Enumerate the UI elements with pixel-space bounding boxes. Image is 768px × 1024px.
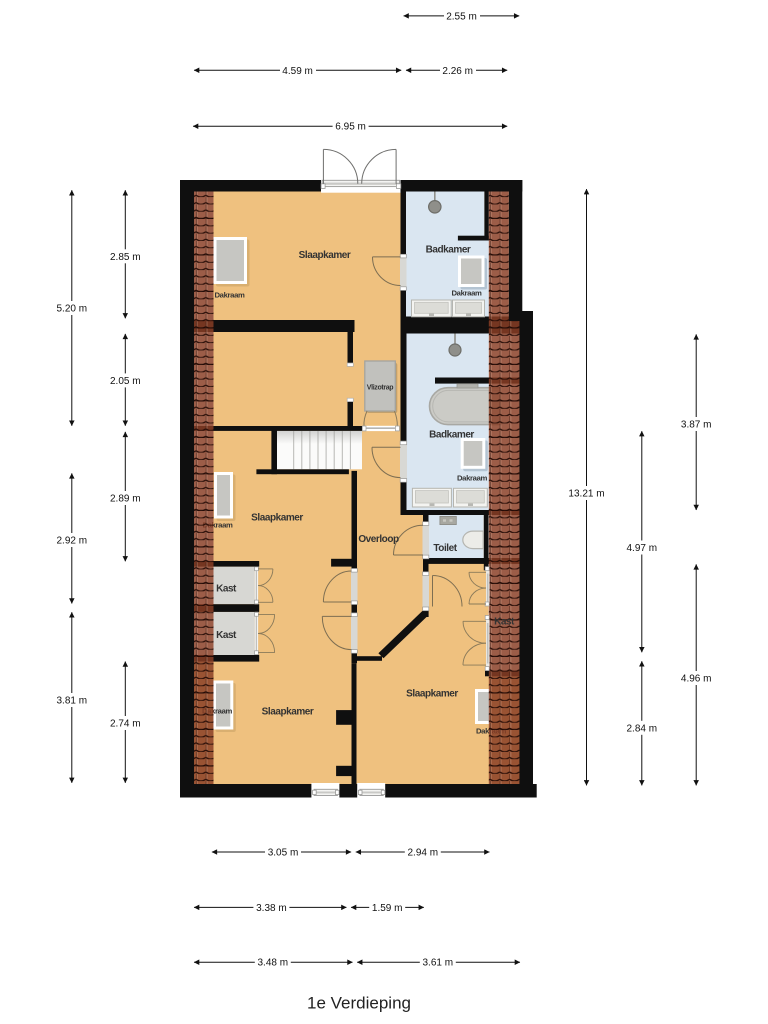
- svg-text:Badkamer: Badkamer: [426, 245, 471, 256]
- svg-text:3.61 m: 3.61 m: [423, 958, 454, 969]
- svg-text:2.84 m: 2.84 m: [627, 723, 658, 734]
- svg-text:Kast: Kast: [216, 630, 237, 641]
- svg-text:Toilet: Toilet: [433, 543, 457, 554]
- svg-text:3.87 m: 3.87 m: [681, 420, 712, 431]
- svg-text:2.92 m: 2.92 m: [57, 536, 88, 547]
- svg-text:1.59 m: 1.59 m: [372, 903, 403, 914]
- svg-text:Kast: Kast: [494, 617, 515, 628]
- svg-text:Slaapkamer: Slaapkamer: [406, 688, 458, 699]
- svg-text:3.81 m: 3.81 m: [57, 696, 88, 707]
- svg-text:2.94 m: 2.94 m: [408, 848, 439, 859]
- svg-text:Badkamer: Badkamer: [429, 429, 474, 440]
- svg-text:Slaapkamer: Slaapkamer: [262, 707, 314, 718]
- svg-text:Slaapkamer: Slaapkamer: [251, 513, 303, 524]
- svg-text:6.95 m: 6.95 m: [335, 122, 366, 133]
- svg-text:3.48 m: 3.48 m: [258, 958, 289, 969]
- svg-text:2.05 m: 2.05 m: [110, 376, 141, 387]
- svg-text:3.38 m: 3.38 m: [256, 903, 287, 914]
- svg-text:Slaapkamer: Slaapkamer: [299, 250, 351, 261]
- svg-text:Dakraam: Dakraam: [214, 291, 245, 300]
- svg-text:2.74 m: 2.74 m: [110, 719, 141, 730]
- svg-text:3.05 m: 3.05 m: [268, 848, 299, 859]
- svg-text:4.97 m: 4.97 m: [627, 543, 658, 554]
- svg-text:1e Verdieping: 1e Verdieping: [307, 994, 411, 1013]
- svg-text:Dakraam: Dakraam: [451, 288, 482, 297]
- svg-text:Vlizotrap: Vlizotrap: [367, 385, 393, 392]
- svg-text:13.21 m: 13.21 m: [568, 489, 604, 500]
- svg-text:2.85 m: 2.85 m: [110, 252, 141, 263]
- svg-text:Dakraam: Dakraam: [457, 474, 488, 483]
- svg-text:5.20 m: 5.20 m: [57, 304, 88, 315]
- svg-text:2.55 m: 2.55 m: [446, 11, 477, 22]
- svg-text:2.89 m: 2.89 m: [110, 494, 141, 505]
- svg-text:Kast: Kast: [216, 584, 237, 595]
- svg-text:4.96 m: 4.96 m: [681, 674, 712, 685]
- svg-text:Overloop: Overloop: [358, 534, 399, 545]
- svg-text:2.26 m: 2.26 m: [442, 66, 473, 77]
- svg-text:4.59 m: 4.59 m: [282, 66, 313, 77]
